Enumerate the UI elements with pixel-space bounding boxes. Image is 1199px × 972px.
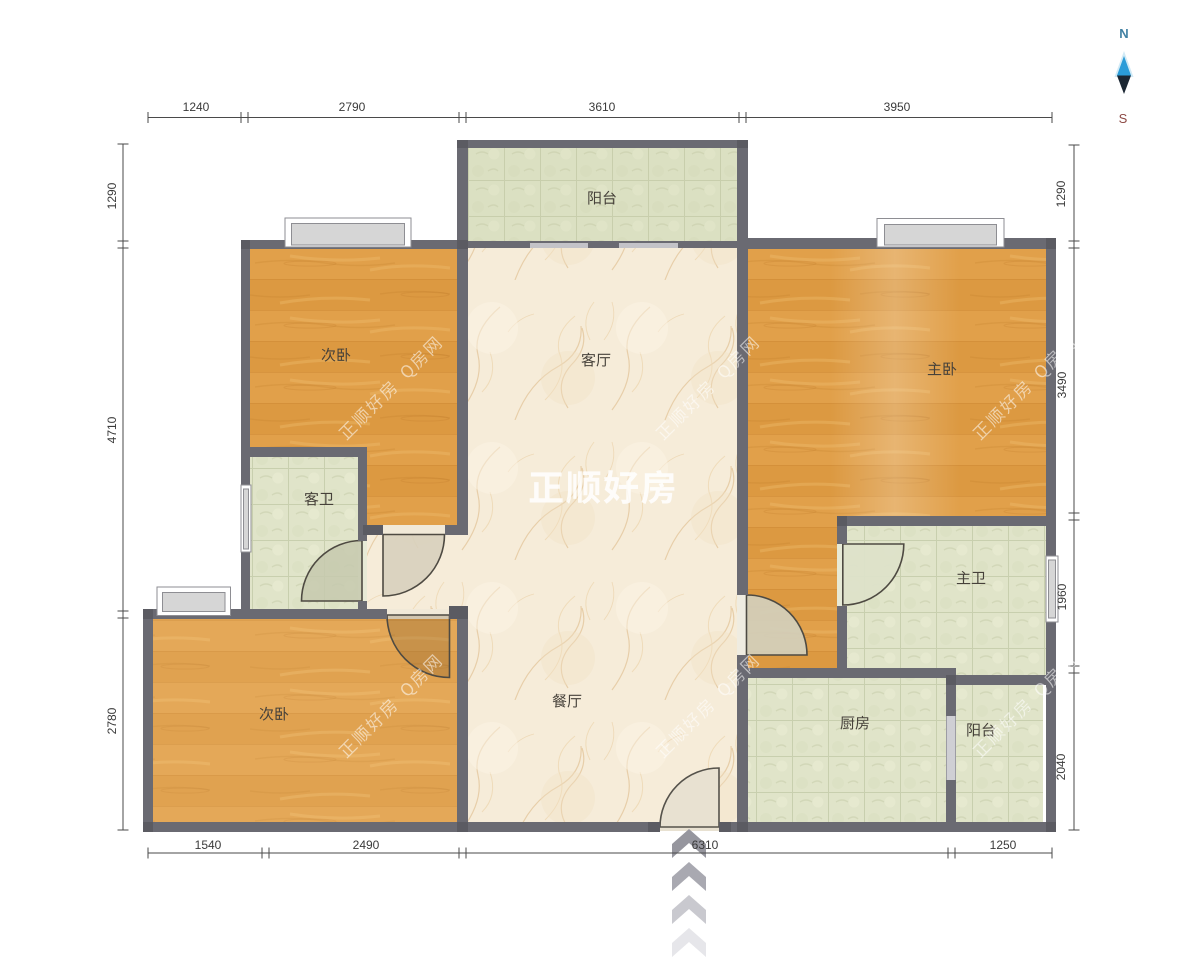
svg-text:2790: 2790 <box>339 100 366 114</box>
svg-text:1540: 1540 <box>195 838 222 852</box>
svg-text:1290: 1290 <box>105 182 119 209</box>
svg-text:S: S <box>1119 111 1128 126</box>
svg-text:2040: 2040 <box>1054 753 1068 780</box>
svg-text:6310: 6310 <box>692 838 719 852</box>
svg-text:N: N <box>1119 26 1128 41</box>
svg-text:1240: 1240 <box>183 100 210 114</box>
svg-text:3490: 3490 <box>1055 371 1069 398</box>
svg-text:1250: 1250 <box>990 838 1017 852</box>
svg-text:2490: 2490 <box>353 838 380 852</box>
svg-text:2780: 2780 <box>105 707 119 734</box>
svg-text:1290: 1290 <box>1054 180 1068 207</box>
svg-text:1960: 1960 <box>1055 583 1069 610</box>
svg-text:4710: 4710 <box>105 416 119 443</box>
svg-text:3610: 3610 <box>589 100 616 114</box>
svg-text:3950: 3950 <box>884 100 911 114</box>
